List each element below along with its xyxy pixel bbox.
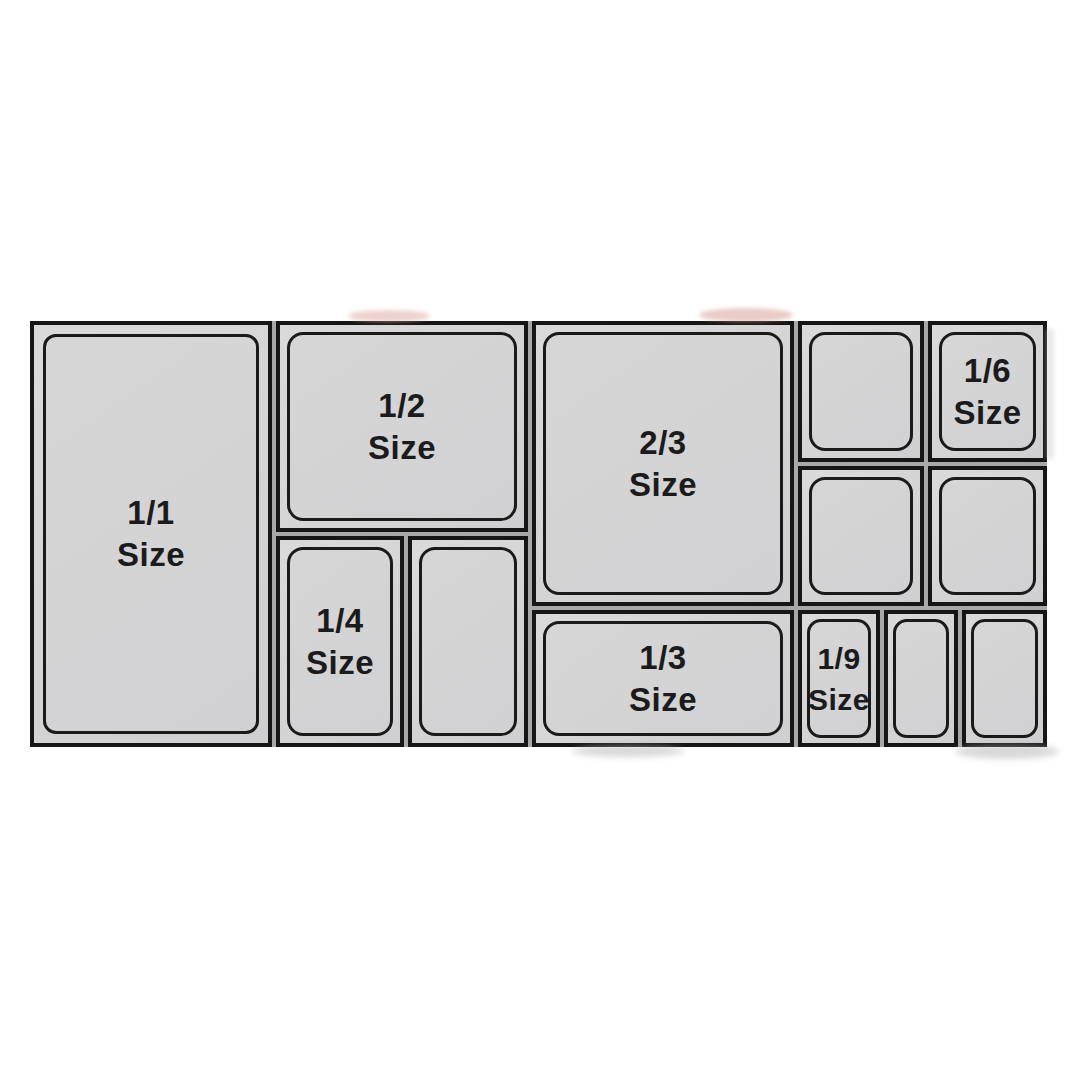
pan-rim <box>893 619 949 738</box>
pan-size-fraction: 2/3 <box>629 422 697 464</box>
pan-rim: 1/3 Size <box>543 621 783 736</box>
pan-rim <box>971 619 1038 738</box>
pan-half-size: 1/2 Size <box>276 321 528 532</box>
pan-size-label: 1/3 Size <box>629 637 697 721</box>
pan-size-word: Size <box>629 679 697 721</box>
pan-size-word: Size <box>629 464 697 506</box>
pan-grid: 1/1 Size 1/2 Size 1/4 Size <box>30 321 1047 747</box>
pan-size-label: 1/2 Size <box>368 385 436 469</box>
pan-rim <box>809 477 913 595</box>
pan-size-word: Size <box>953 392 1021 434</box>
photo-artifact-pink-top-right <box>699 308 793 322</box>
pan-rim: 1/9 Size <box>807 619 871 738</box>
pan-size-label: 1/1 Size <box>117 492 185 576</box>
pan-size-label: 1/4 Size <box>306 600 374 684</box>
pan-size-fraction: 1/2 <box>368 385 436 427</box>
pan-rim: 1/1 Size <box>43 334 259 734</box>
pan-size-fraction: 1/4 <box>306 600 374 642</box>
pan-size-fraction: 1/1 <box>117 492 185 534</box>
pan-quarter-size: 1/4 Size <box>276 536 404 747</box>
pan-rim: 2/3 Size <box>543 332 783 595</box>
pan-rim <box>419 547 517 736</box>
pan-size-word: Size <box>368 427 436 469</box>
pan-sixth-size: 1/6 Size <box>928 321 1047 462</box>
pan-rim: 1/2 Size <box>287 332 517 521</box>
pan-full-size: 1/1 Size <box>30 321 272 747</box>
pan-size-word: Size <box>808 679 870 720</box>
pan-size-label: 1/9 Size <box>808 638 870 720</box>
pan-quarter-size-unlabeled <box>408 536 528 747</box>
pan-size-fraction: 1/6 <box>953 350 1021 392</box>
pan-size-word: Size <box>117 534 185 576</box>
pan-size-fraction: 1/3 <box>629 637 697 679</box>
pan-rim <box>809 332 913 451</box>
pan-two-thirds-size: 2/3 Size <box>532 321 794 606</box>
pan-size-label: 1/6 Size <box>953 350 1021 434</box>
pan-ninth-size-unlabeled-2 <box>962 610 1047 747</box>
pan-size-fraction: 1/9 <box>808 638 870 679</box>
pan-size-label: 2/3 Size <box>629 422 697 506</box>
pan-rim: 1/4 Size <box>287 547 393 736</box>
photo-artifact-shadow-right-edge <box>1046 328 1054 460</box>
pan-sixth-size-unlabeled-2 <box>798 466 924 606</box>
pan-rim <box>939 477 1036 595</box>
pan-third-size: 1/3 Size <box>532 610 794 747</box>
pan-size-chart: 1/1 Size 1/2 Size 1/4 Size <box>0 0 1080 1080</box>
pan-ninth-size-unlabeled-1 <box>884 610 958 747</box>
pan-sixth-size-unlabeled-3 <box>928 466 1047 606</box>
pan-sixth-size-unlabeled-1 <box>798 321 924 462</box>
pan-ninth-size: 1/9 Size <box>798 610 880 747</box>
pan-rim: 1/6 Size <box>939 332 1036 451</box>
pan-size-word: Size <box>306 642 374 684</box>
